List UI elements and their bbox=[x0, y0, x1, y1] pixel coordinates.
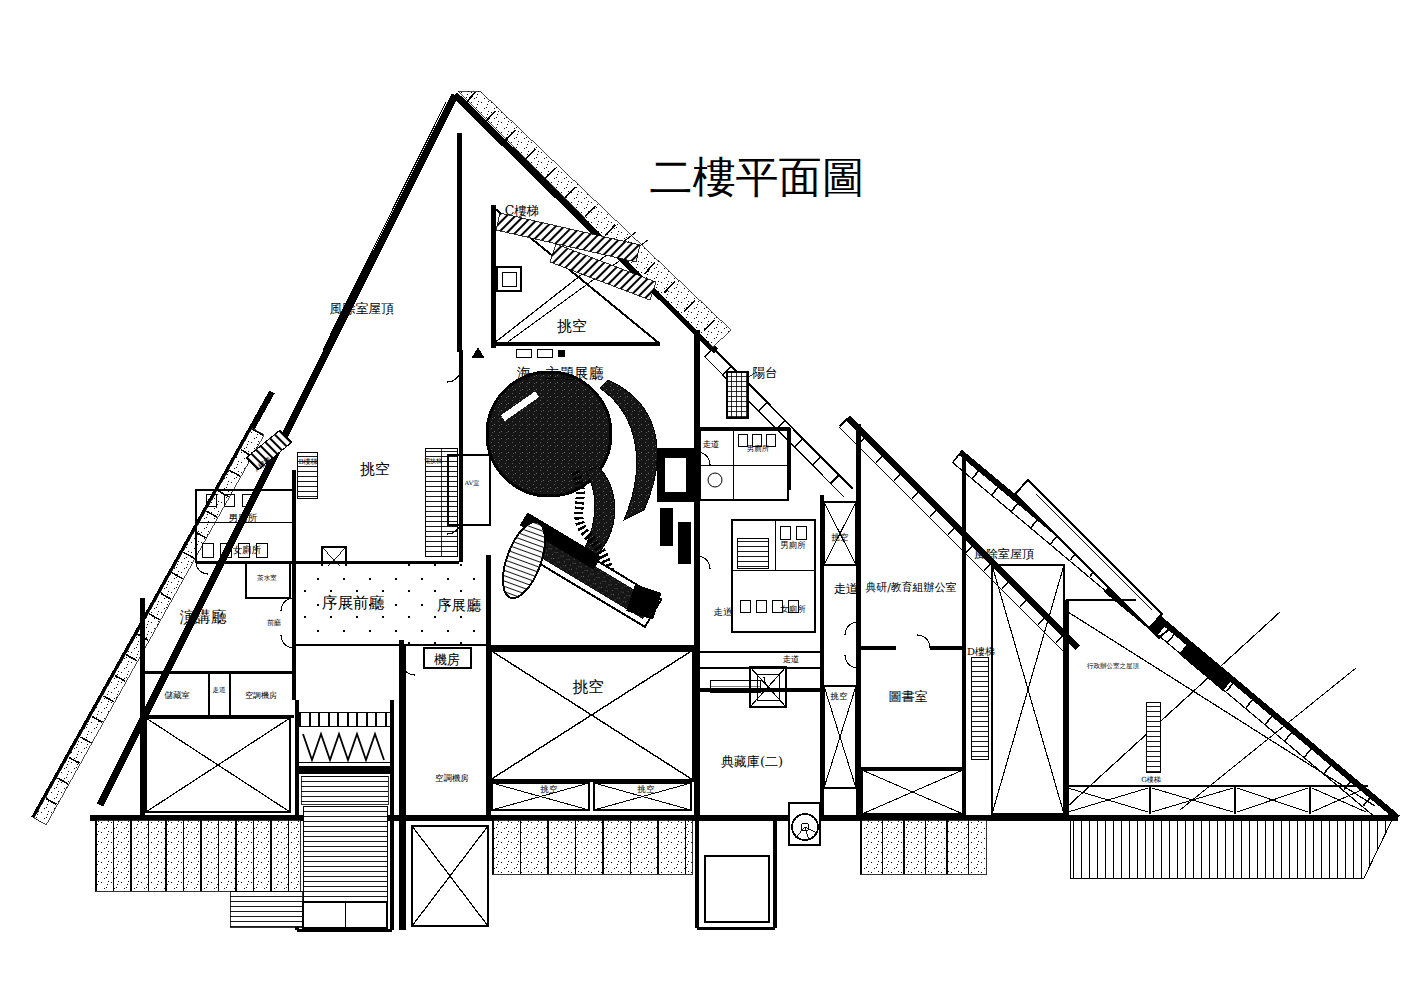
label-g-stairs: G樓梯 bbox=[1141, 776, 1161, 784]
label-corridor-bl: 走道 bbox=[213, 686, 227, 694]
page-title: 二樓平面圖 bbox=[650, 152, 865, 202]
label-windbreak-roof-left: 風除室屋頂 bbox=[330, 301, 395, 316]
north-arrow bbox=[472, 347, 485, 358]
g-stair-run bbox=[1146, 702, 1160, 772]
label-collection-storage-2: 典藏庫(二) bbox=[721, 754, 783, 769]
spiral-stair bbox=[789, 803, 820, 845]
floor-plan-page: 二樓平面圖 風除室屋頂 C樓梯 挑空 海 - 主題展廳 陽台 A樓梯 B樓梯 挑… bbox=[0, 0, 1415, 1000]
label-windbreak-roof-right: 風除室屋頂 bbox=[974, 547, 1034, 561]
label-d-stairs: D樓梯 bbox=[967, 646, 995, 657]
label-storage-room: 儲藏室 bbox=[164, 690, 190, 700]
label-front-hall: 前廳 bbox=[267, 619, 281, 627]
d-stair-run bbox=[971, 657, 988, 759]
label-void-right-lower: 挑空 bbox=[830, 691, 848, 701]
label-corridor-c-mid: 走道 bbox=[714, 606, 734, 617]
label-lecture-hall: 演講廳 bbox=[180, 608, 227, 626]
label-women-toilet-left: 女廁所 bbox=[233, 544, 262, 555]
balcony-deck bbox=[727, 372, 748, 418]
label-c-stairs: C樓梯 bbox=[505, 203, 540, 218]
label-ac-room-left: 空調機房 bbox=[245, 691, 277, 700]
label-corridor-right: 走道 bbox=[834, 581, 859, 596]
label-balcony: 陽台 bbox=[753, 365, 778, 380]
label-void-left: 挑空 bbox=[360, 460, 390, 478]
label-b-stairs: B樓梯 bbox=[298, 458, 317, 466]
label-prologue-hall: 序展廳 bbox=[437, 597, 481, 613]
walls bbox=[90, 133, 1398, 930]
label-ac-room-mid: 空調機房 bbox=[435, 773, 469, 783]
label-escalator: 電扶梯 bbox=[424, 457, 442, 464]
label-corridor-c-top: 走道 bbox=[703, 439, 720, 449]
label-corridor-c-low: 走道 bbox=[783, 654, 800, 664]
label-admin-office-roof: 行政辦公室之屋頂 bbox=[1087, 662, 1140, 670]
site-bands bbox=[95, 820, 1392, 927]
label-machine-room: 機房 bbox=[434, 652, 460, 667]
label-void-bottom-2: 挑空 bbox=[637, 784, 655, 794]
exhibits bbox=[298, 347, 760, 692]
label-men-toilet-c-top: 男廁所 bbox=[747, 444, 770, 453]
label-men-toilet-left: 男廁所 bbox=[229, 512, 258, 523]
label-void-right-upper: 挑空 bbox=[831, 532, 849, 542]
e-stair-run bbox=[737, 538, 768, 568]
label-library: 圖書室 bbox=[889, 689, 928, 704]
label-sea-theme-hall: 海 - 主題展廳 bbox=[517, 365, 604, 381]
label-men-toilet-c: 男廁所 bbox=[780, 540, 806, 550]
label-void-bottom-1: 挑空 bbox=[540, 784, 558, 794]
label-void-center: 挑空 bbox=[573, 678, 604, 696]
label-void-upper: 挑空 bbox=[557, 317, 587, 335]
label-research-office: 典研/教育組辦公室 bbox=[865, 581, 957, 594]
label-women-toilet-c: 女廁所 bbox=[780, 604, 806, 614]
label-tea-room: 茶水室 bbox=[256, 574, 277, 582]
entry-bay bbox=[299, 712, 390, 928]
floor-plan-canvas: 二樓平面圖 風除室屋頂 C樓梯 挑空 海 - 主題展廳 陽台 A樓梯 B樓梯 挑… bbox=[0, 0, 1415, 1000]
label-av-room: AV室 bbox=[464, 479, 479, 486]
c-elevator bbox=[497, 267, 521, 291]
label-prologue-front-hall: 序展前廳 bbox=[322, 594, 385, 612]
